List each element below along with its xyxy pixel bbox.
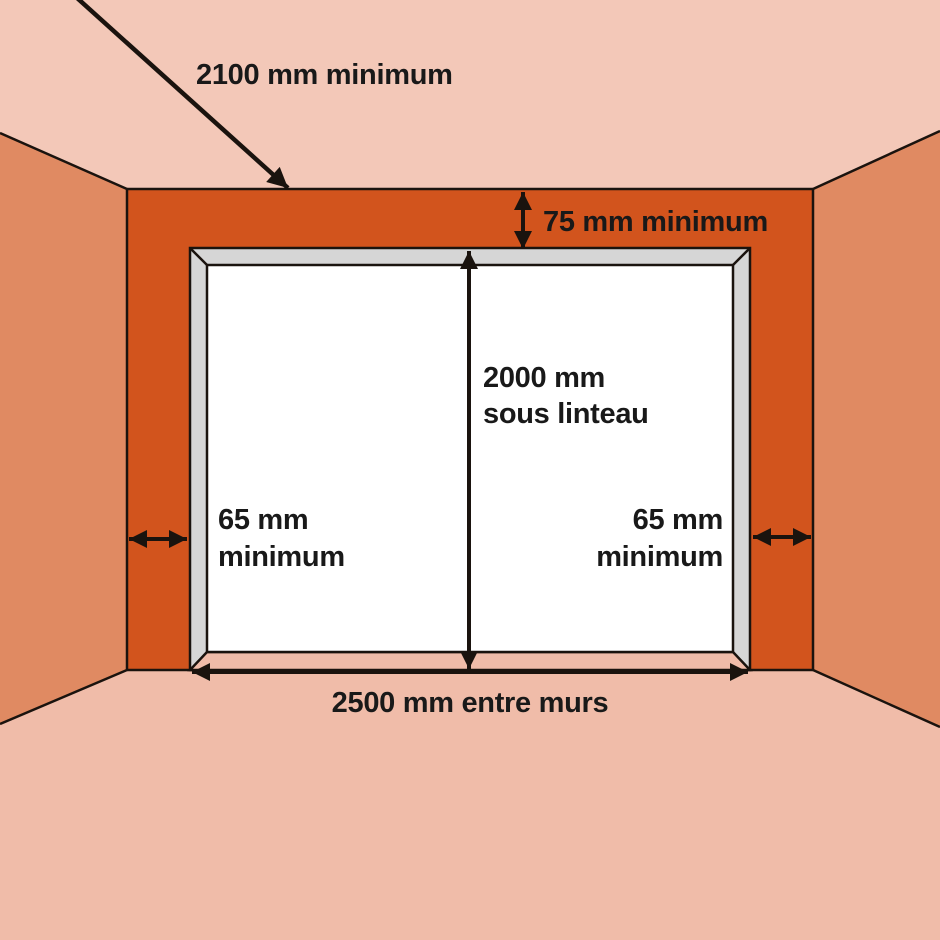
lintel-min-label: 75 mm minimum — [543, 204, 768, 240]
right-margin-label: 65 mm minimum — [596, 502, 723, 576]
left-margin-caption-text: minimum — [218, 539, 345, 576]
room-perspective-drawing — [0, 0, 940, 940]
depth-min-label: 2100 mm minimum — [196, 57, 453, 93]
left-margin-value-text: 65 mm — [218, 502, 345, 539]
right-wall-surface — [813, 131, 940, 727]
right-margin-value-text: 65 mm — [596, 502, 723, 539]
ceiling-surface — [0, 0, 940, 189]
garage-door-dimensions-diagram: 2100 mm minimum 75 mm minimum 2000 mm so… — [0, 0, 940, 940]
height-value-text: 2000 mm — [483, 360, 649, 396]
width-between-walls-label: 2500 mm entre murs — [0, 685, 940, 721]
right-margin-caption-text: minimum — [596, 539, 723, 576]
height-under-lintel-label: 2000 mm sous linteau — [483, 360, 649, 432]
left-wall-surface — [0, 133, 127, 724]
left-margin-label: 65 mm minimum — [218, 502, 345, 576]
height-caption-text: sous linteau — [483, 396, 649, 432]
